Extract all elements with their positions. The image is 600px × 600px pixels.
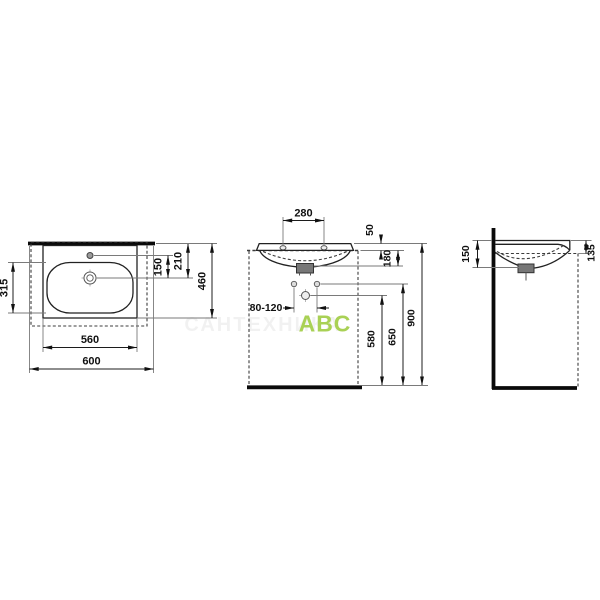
dim-taphole-to-drain: 150 <box>153 256 169 279</box>
waste-trap <box>518 264 534 281</box>
dim-label-150: 150 <box>460 245 472 263</box>
dim-basin-depth: 315 <box>0 263 46 314</box>
fixing-hole-right <box>314 281 319 286</box>
fixing-hole-left <box>291 281 296 286</box>
dim-rim-overhang: 135 <box>571 241 598 262</box>
dim-inner-width: 560 <box>43 319 137 352</box>
dim-taphole-spacing: 280 <box>283 208 324 246</box>
dim-label-650: 650 <box>387 328 399 346</box>
taphole-mark-left <box>280 246 286 250</box>
dim-label-315: 315 <box>0 279 11 297</box>
taphole-mark-right <box>321 246 327 250</box>
dim-rim-to-outlet: 180 <box>382 250 399 268</box>
dim-label-460: 460 <box>197 272 209 290</box>
technical-drawing: САНТЕХНИКА ABC 315 <box>0 0 600 600</box>
dim-label-80-120: 80-120 <box>250 302 283 314</box>
bowl-hidden-arc-dashed <box>497 246 564 259</box>
dim-rear-to-drain: 210 <box>173 244 189 279</box>
dim-label-560: 560 <box>81 334 99 346</box>
dim-supply-spacing: 80-120 <box>250 288 329 315</box>
taphole-icon <box>87 253 93 259</box>
front-view: 280 80-120 50 <box>247 208 428 388</box>
bowl-underside-left <box>260 251 297 267</box>
outlet-pipe-icon <box>299 289 312 302</box>
dim-label-600: 600 <box>82 356 100 368</box>
watermark-brand-text: ABC <box>299 311 352 337</box>
bowl-underside-rear <box>495 252 518 265</box>
dim-label-135: 135 <box>586 244 598 262</box>
bowl-hidden-arc-dashed <box>263 252 347 261</box>
watermark: САНТЕХНИКА ABC <box>184 311 351 337</box>
dim-trap-height: 580 <box>366 296 383 386</box>
drawing-canvas: САНТЕХНИКА ABC 315 <box>0 0 600 600</box>
dim-outlet-height: 650 <box>387 284 404 386</box>
dim-label-210: 210 <box>173 252 185 270</box>
side-view: 150 135 <box>460 228 598 389</box>
bowl-underside-right <box>314 251 351 267</box>
dim-label-180: 180 <box>382 250 394 268</box>
dim-overall-height: 900 <box>406 244 423 386</box>
rim-profile <box>257 244 354 251</box>
dim-label-900: 900 <box>406 309 418 327</box>
dim-label-280: 280 <box>294 208 312 220</box>
dim-label-150: 150 <box>153 258 165 276</box>
rim-inner-line <box>495 244 569 250</box>
top-view: 315 150 210 460 560 <box>0 242 217 373</box>
dim-rim-offset: 50 <box>364 224 381 257</box>
dim-label-50: 50 <box>364 224 376 236</box>
dim-label-580: 580 <box>366 330 378 348</box>
waste-trap <box>297 264 314 276</box>
